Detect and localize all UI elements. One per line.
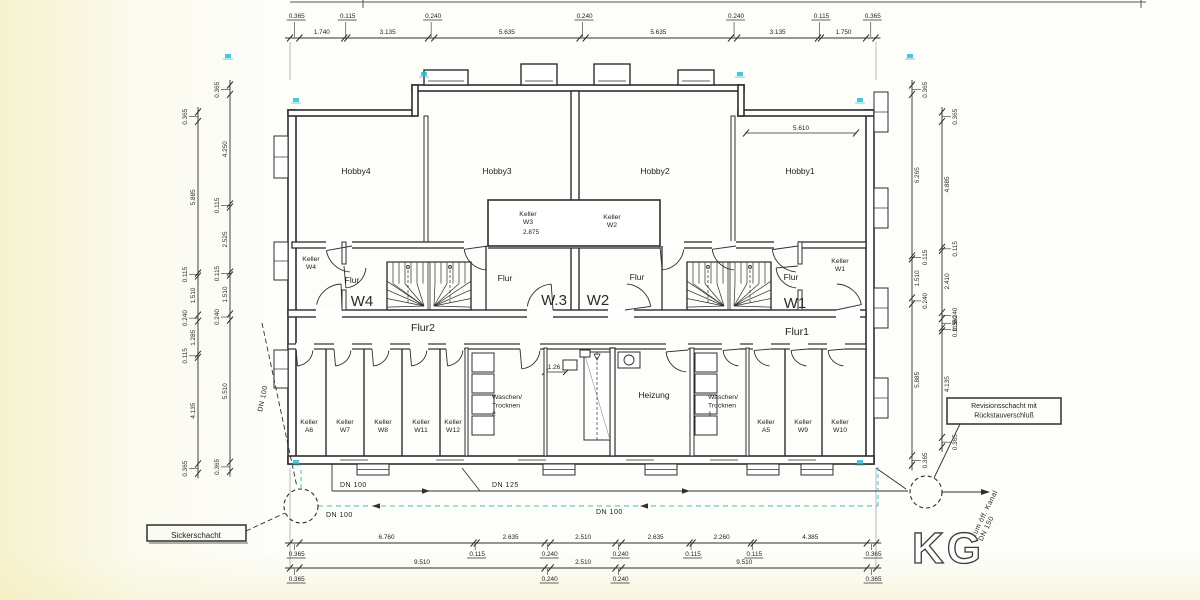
dim-value: 6.265 [914,167,921,183]
room-label-waschen-trocknen-2: Waschen/ [492,394,522,401]
dim-value: 0.365 [866,576,882,583]
dim-value: 0.115 [182,348,189,364]
dim-value: 2.510 [575,534,591,541]
dim-value: 0.365 [865,13,881,20]
pipe-label-dn125: DN 125 [492,482,519,489]
unit-label-w2: W2 [587,292,610,309]
room-label-keller: W12 [446,427,460,434]
room-label-keller: W9 [798,427,808,434]
unit-label-w4: W4 [351,293,374,310]
dim-value: 0.365 [866,551,882,558]
room-label-keller-w2: Keller [603,214,621,221]
room-label-flur-right: Flur [784,272,799,282]
dim-keller-w3-width: 2.875 [523,229,539,236]
dim-value: 5.635 [650,29,666,36]
pipe-label-dn100-dashed-center: DN 100 [596,509,623,516]
dim-value: 3.135 [770,29,786,36]
dim-value: 5.510 [222,383,229,399]
sheet-border [290,0,1146,8]
sickerschacht-label: Sickerschacht [171,531,222,540]
dim-value: 4.885 [944,176,951,192]
dim-value: 1.510 [914,270,921,286]
room-label-keller: Keller [794,419,812,426]
dim-value: 0.365 [922,81,929,97]
dim-value: 1.740 [314,29,330,36]
pipe-label-dn100-diagonal: DN 100 [257,385,269,413]
room-label-waschen-trocknen-1: 1 [708,411,712,418]
room-label-heizung: Heizung [638,390,669,400]
room-label-flur-center-right: Flur [630,272,645,282]
dim-value: 0.365 [214,81,221,97]
room-label-keller-w1: W1 [835,266,845,273]
pipe-label-dn100-dashed-left: DN 100 [326,512,353,519]
dim-value: 0.115 [182,266,189,282]
dim-value: 5.885 [914,371,921,387]
room-label-keller-w4: Keller [302,256,320,263]
dim-value: 4.135 [190,402,197,418]
room-label-keller: W10 [833,427,847,434]
room-label-waschen-trocknen-1: Waschen/ [708,394,738,401]
room-label-keller: A5 [762,427,771,434]
dim-value: 0.365 [289,13,305,20]
dim-value: 0.365 [952,108,959,124]
room-label-waschen-trocknen-2: Trocknen [492,403,520,410]
dim-value: 4.385 [802,534,818,541]
unit-label-w3: W.3 [541,292,567,309]
room-label-keller: Keller [831,419,849,426]
dim-value: 3.135 [380,29,396,36]
room-label-keller-w4: W4 [306,264,316,271]
dim-value: 0.115 [214,197,221,213]
room-label-keller: W11 [414,427,428,434]
dim-value: 1.510 [190,287,197,303]
dim-value: 0.115 [469,551,485,558]
room-label-keller-w1: Keller [831,258,849,265]
dim-value: 2.510 [575,559,591,566]
dim-value: 0.240 [214,309,221,325]
dim-value: 0.115 [214,265,221,281]
dim-value: 0.365 [182,460,189,476]
room-label-keller: W8 [378,427,388,434]
dim-value: 0.115 [340,13,356,20]
room-label-flur-center-left: Flur [498,273,513,283]
svg-text:DN 100: DN 100 [257,385,269,413]
room-label-waschen-trocknen-1: Trocknen [708,403,736,410]
dim-value: 1.285 [190,329,197,345]
floor-label-kg: KG [912,524,984,573]
dim-value: 0.240 [728,13,744,20]
dim-value: 0.365 [289,576,305,583]
room-label-keller: W7 [340,427,350,434]
dim-value: 0.240 [425,13,441,20]
dim-value: 0.115 [952,241,959,257]
dim-value: 0.115 [747,551,763,558]
dim-value: 0.240 [542,551,558,558]
dim-value: 4.135 [944,376,951,392]
room-label-keller-w2: W2 [607,222,617,229]
dim-value: 0.240 [577,13,593,20]
dim-value: 9.510 [736,559,752,566]
dim-value: 5.635 [499,29,515,36]
dim-shaft-width: 1.26 [548,364,561,371]
corridor-label-flur2: Flur2 [411,322,435,334]
dim-value: 0.240 [922,292,929,308]
revisionsschacht-label: Revisionsschacht mit [971,403,1037,410]
dim-value: 0.365 [182,108,189,124]
dim-value: 4.250 [222,141,229,157]
floor-plan-drawing: 0.3651.7400.1153.1350.2405.6350.2405.635… [0,0,1200,600]
room-label-keller: Keller [412,419,430,426]
dim-value: 2.635 [648,534,664,541]
dim-value: 0.240 [613,576,629,583]
dim-hobby1-width: 5.610 [793,125,809,132]
dim-value: 0.240 [613,551,629,558]
dim-value: 1.510 [222,286,229,302]
dim-value: 0.365 [289,551,305,558]
dim-value: 0.240 [542,576,558,583]
dim-value: 0.115 [952,321,959,337]
dim-value: 1.750 [835,29,851,36]
dim-value: 0.115 [685,551,701,558]
dim-value: 2.410 [944,273,951,289]
dim-value: 2.525 [222,231,229,247]
room-label-waschen-trocknen-2: 2 [492,411,496,418]
room-label-flur-left: Flur [345,275,360,285]
dim-value: 5.885 [190,189,197,205]
dim-value: 0.240 [182,310,189,326]
floor-plan-page: 0.3651.7400.1153.1350.2405.6350.2405.635… [0,0,1200,600]
room-label-keller: A6 [305,427,314,434]
room-label-keller: Keller [336,419,354,426]
room-label-hobby3: Hobby3 [482,166,512,176]
room-label-keller: Keller [444,419,462,426]
dim-value: 0.365 [922,452,929,468]
dim-value: 0.365 [214,458,221,474]
room-label-keller-w3: W3 [523,219,533,226]
corridor-label-flur1: Flur1 [785,326,809,338]
dim-value: 0.365 [952,434,959,450]
dim-value: 6.760 [379,534,395,541]
room-label-keller-w3: Keller [519,211,537,218]
room-label-keller: Keller [374,419,392,426]
dim-value: 2.260 [714,534,730,541]
dim-value: 0.115 [814,13,830,20]
unit-label-w1: W1 [784,295,807,312]
room-label-keller: Keller [757,419,775,426]
revisionsschacht-label: Rückstauverschluß [974,413,1034,420]
dim-value: 0.115 [922,249,929,265]
dim-value: 2.635 [503,534,519,541]
room-label-hobby4: Hobby4 [341,166,371,176]
room-label-hobby1: Hobby1 [785,166,815,176]
dim-value: 9.510 [414,559,430,566]
pipe-label-dn100-main: DN 100 [340,482,367,489]
room-label-hobby2: Hobby2 [640,166,670,176]
room-label-keller: Keller [300,419,318,426]
